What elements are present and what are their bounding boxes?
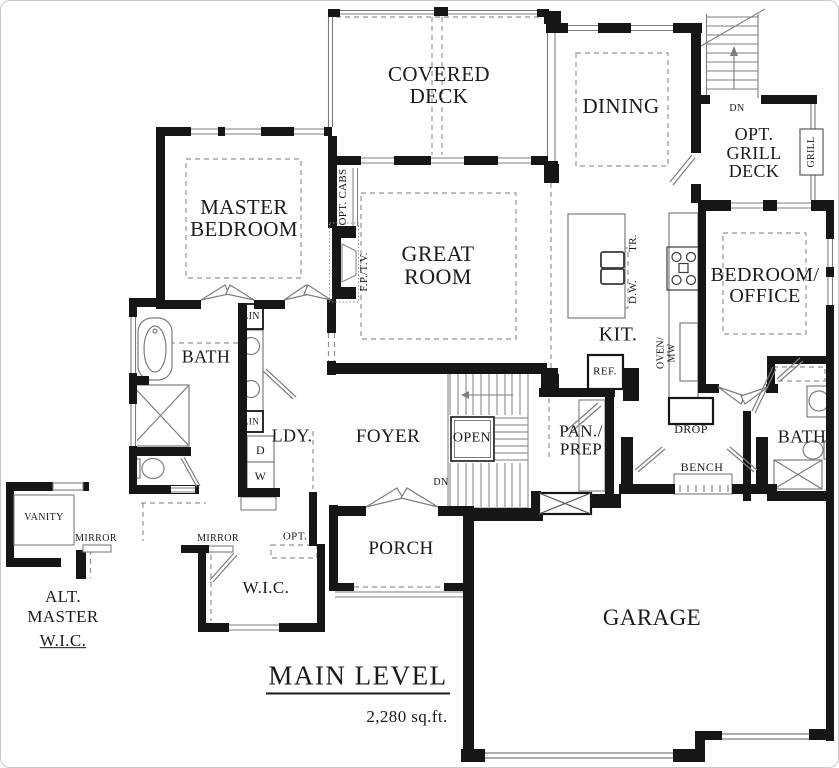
room-label-pantry-prep: PAN./ PREP xyxy=(559,422,602,457)
opt-cabs-strip xyxy=(353,168,358,226)
room-label-laundry: LDY. xyxy=(272,427,313,446)
vanity-label: VANITY xyxy=(24,513,63,523)
bench-unit xyxy=(674,474,732,494)
washer-label: W xyxy=(255,469,267,481)
grill-label: GRILL xyxy=(806,137,817,168)
alt-master-wic-detail xyxy=(6,482,111,579)
room-label-dining: DINING xyxy=(582,96,659,118)
porch-steps xyxy=(335,592,467,597)
dryer-label: D xyxy=(256,443,265,455)
masonry-columns xyxy=(539,493,591,514)
dn-stairs-label: DN xyxy=(433,478,448,488)
trash-label: TR. xyxy=(628,234,640,252)
mirror-left-label: MIRROR xyxy=(75,534,117,544)
bench-label: BENCH xyxy=(681,461,724,473)
laundry-counter xyxy=(241,497,276,510)
floor-plan: COVERED DECK DINING OPT. GRILL DECK MAST… xyxy=(0,0,839,768)
exterior-stairs xyxy=(701,9,765,98)
room-label-master-bedroom: MASTER BEDROOM xyxy=(190,197,298,241)
island-sink-bowl-2 xyxy=(601,269,624,284)
room-label-master-bath: BATH xyxy=(182,348,231,367)
plan-title: MAIN LEVEL xyxy=(266,661,450,694)
room-label-bath2: BATH xyxy=(778,428,827,447)
alt-master-wic-line3: W.I.C. xyxy=(40,632,87,650)
room-label-porch: PORCH xyxy=(368,539,433,559)
refrigerator-label: REF. xyxy=(593,366,617,377)
garage-doors xyxy=(483,734,811,758)
island-sink-bowl-1 xyxy=(601,252,624,268)
alt-master-wic-line2: MASTER xyxy=(27,608,98,626)
bathtub-drain xyxy=(153,329,157,333)
room-label-bedroom-office: BEDROOM/ OFFICE xyxy=(711,265,820,307)
opt-cabs-label: OPT. CABS xyxy=(338,169,350,226)
oven-microwave-label: OVEN/ MW xyxy=(657,337,678,369)
toilet-bowl xyxy=(142,459,164,479)
room-label-kitchen: KIT. xyxy=(599,325,637,346)
linen-bottom-label: LIN xyxy=(243,417,259,426)
linen-top-label: LIN xyxy=(242,312,260,322)
opt-wic-label: OPT. xyxy=(283,531,307,542)
plan-area: 2,280 sq.ft. xyxy=(366,708,447,726)
drop-label: DROP xyxy=(674,423,708,435)
kitchen-island xyxy=(568,214,625,318)
dn-exterior-label: DN xyxy=(729,104,744,114)
alt-master-wic-line1: ALT. xyxy=(45,588,81,606)
range-center xyxy=(679,264,688,273)
room-label-opt-grill-deck: OPT. GRILL DECK xyxy=(727,125,782,181)
room-label-great-room: GREAT ROOM xyxy=(402,243,475,289)
kitchen-counter-range xyxy=(667,213,700,409)
floor-plan-drawing xyxy=(1,1,839,768)
mirror-right-label: MIRROR xyxy=(197,534,239,544)
fireplace-tv-label: F.P./T.V. xyxy=(359,252,371,291)
open-stairwell-label: OPEN xyxy=(453,432,491,447)
drop-cabinet xyxy=(669,398,713,424)
alt-mirror xyxy=(83,545,111,552)
room-label-foyer: FOYER xyxy=(356,427,420,447)
oven-cabinet xyxy=(680,323,698,381)
room-label-wic: W.I.C. xyxy=(243,579,290,597)
room-label-garage: GARAGE xyxy=(603,606,701,630)
room-label-covered-deck: COVERED DECK xyxy=(388,64,490,108)
dishwasher-label: D.W. xyxy=(628,280,640,304)
